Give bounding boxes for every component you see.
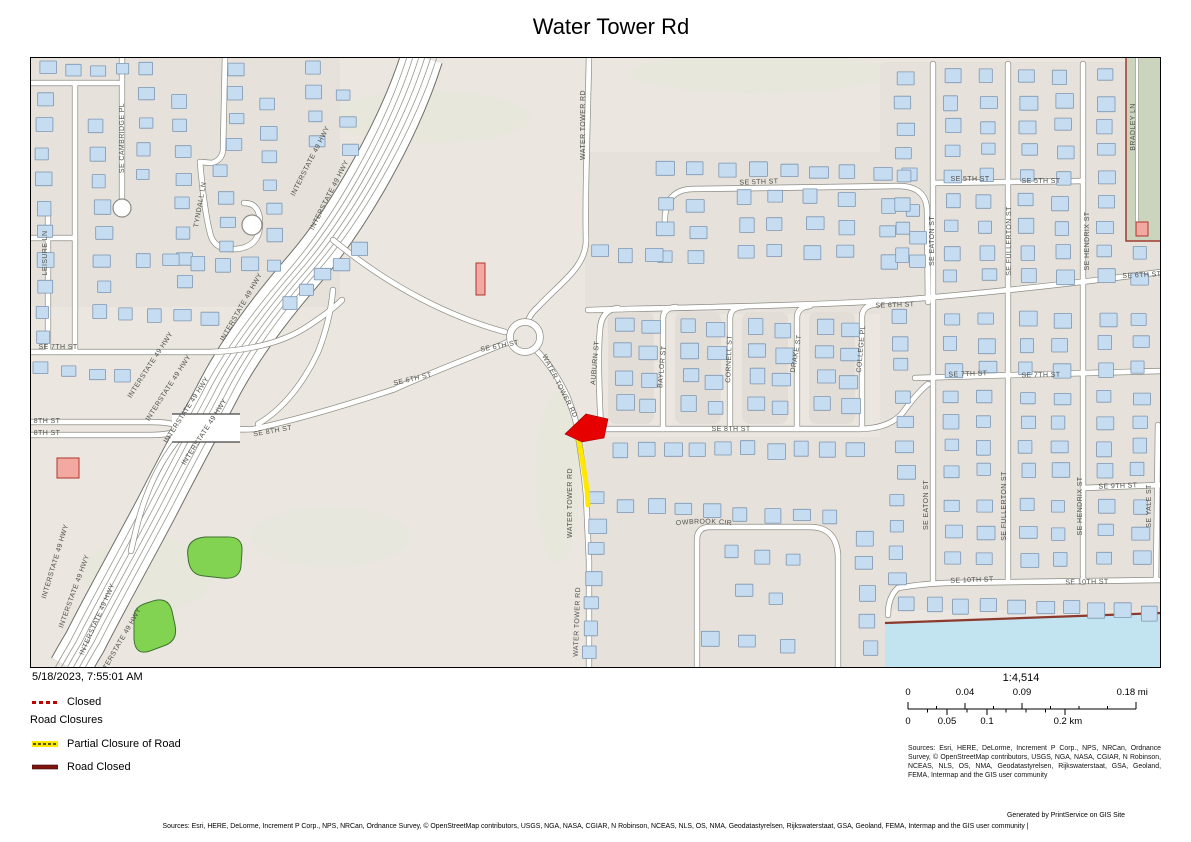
legend-group-road-closures: Road Closures: [30, 714, 103, 726]
street-label: SE 5TH ST: [739, 178, 779, 186]
partial-closure-swatch-icon: [32, 740, 58, 748]
road-closed-swatch-icon: [32, 763, 58, 771]
street-label: SE YALE ST: [1146, 484, 1153, 528]
scale-km-labels: 0 0.05 0.1 0.2 km: [905, 716, 1137, 728]
street-label: SE 10TH ST: [1065, 579, 1109, 587]
street-label: SE EATON ST: [923, 480, 930, 530]
street-label: SE 6TH ST: [875, 301, 915, 309]
street-label: SE FULLERTON ST: [1006, 206, 1013, 276]
scale-mi-labels: 0 0.04 0.09 0.18 mi: [905, 687, 1137, 699]
legend-road-closed-label: Road Closed: [67, 761, 131, 773]
street-label: SE 5TH ST: [1022, 178, 1061, 185]
street-label: LEISURE LN: [42, 231, 49, 276]
street-label: SE HENDRIX ST: [1084, 211, 1091, 270]
legend-item-road-closed: Road Closed: [32, 761, 131, 773]
street-label: SE 5TH ST: [951, 176, 990, 183]
street-label: SE HENDRIX ST: [1077, 476, 1084, 535]
print-page: { "title": "Water Tower Rd", "header_dat…: [0, 0, 1191, 842]
street-label: SE FULLERTON ST: [1001, 471, 1008, 541]
street-label: WATER TOWER RD: [567, 468, 574, 538]
street-label: 8TH ST: [34, 430, 61, 437]
street-label: SE 9TH ST: [1098, 482, 1138, 490]
road-closure-map: SE CAMBRIDGE PLTYNDALL LNLEISURE LNSE 7T…: [30, 57, 1161, 668]
bottom-attribution: Sources: Esri, HERE, DeLorme, Increment …: [0, 823, 1191, 830]
map-canvas: SE CAMBRIDGE PLTYNDALL LNLEISURE LNSE 7T…: [30, 57, 1161, 668]
map-date: 5/18/2023, 7:55:01 AM: [32, 671, 143, 683]
street-label: 8TH ST: [34, 418, 61, 425]
street-label: WATER TOWER RD: [580, 90, 587, 160]
sources-attribution: Sources: Esri, HERE, DeLorme, Increment …: [908, 744, 1161, 780]
scale-ratio: 1:4,514: [905, 672, 1137, 684]
street-label: SE 7TH ST: [948, 370, 988, 378]
page-title: Water Tower Rd: [533, 14, 690, 40]
legend-item-partial-closure: Partial Closure of Road: [32, 738, 181, 750]
legend-item-closed: Closed: [32, 696, 101, 708]
street-label: SE CAMBRIDGE PL: [119, 103, 126, 173]
legend-closed-label: Closed: [67, 696, 101, 708]
street-label: SE 7TH ST: [1021, 372, 1060, 380]
closed-dotted-swatch-icon: [32, 699, 58, 706]
street-label: SE 7TH ST: [39, 344, 78, 351]
street-label: SE 8TH ST: [712, 426, 751, 433]
street-label: SE EATON ST: [929, 216, 936, 266]
generated-by-note: Generated by PrintService on GIS Site: [1007, 812, 1125, 819]
street-label: BRADLEY LN: [1130, 103, 1137, 150]
legend-partial-label: Partial Closure of Road: [67, 738, 181, 750]
